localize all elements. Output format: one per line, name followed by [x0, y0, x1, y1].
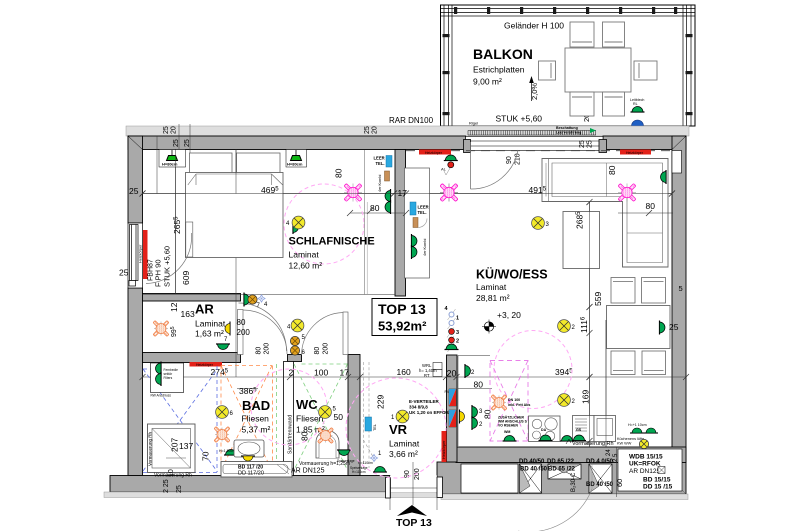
- svg-text:1,63 m²: 1,63 m²: [195, 329, 224, 339]
- svg-text:4er Kombi: 4er Kombi: [423, 239, 427, 256]
- svg-text:53,92m²: 53,92m²: [378, 319, 427, 334]
- svg-text:KÜ/WO/ESS: KÜ/WO/ESS: [476, 267, 548, 282]
- svg-text:RW Anschluss: RW Anschluss: [151, 394, 172, 398]
- svg-text:10: 10: [168, 469, 175, 477]
- svg-text:80: 80: [483, 409, 493, 419]
- svg-text:+3, 20: +3, 20: [497, 310, 521, 320]
- svg-text:Rigel: Rigel: [469, 121, 478, 126]
- svg-text:Laminat: Laminat: [289, 250, 320, 260]
- svg-text:17: 17: [340, 368, 350, 378]
- svg-text:20: 20: [372, 126, 379, 134]
- svg-text:VO RSEHEN: VO RSEHEN: [498, 424, 519, 428]
- svg-text:25: 25: [129, 186, 139, 196]
- svg-text:80: 80: [370, 203, 380, 213]
- svg-text:200: 200: [237, 328, 251, 337]
- svg-text:20: 20: [447, 369, 457, 379]
- svg-text:2: 2: [456, 339, 459, 345]
- svg-text:inkl. Fett Abs: inkl. Fett Abs: [508, 403, 530, 407]
- svg-text:B₂30-C: B₂30-C: [571, 472, 577, 492]
- svg-text:25: 25: [119, 268, 129, 278]
- svg-text:2,0%: 2,0%: [530, 83, 539, 100]
- svg-text:Heizkörper: Heizkörper: [626, 151, 644, 155]
- svg-text:H=110cm: H=110cm: [352, 470, 366, 474]
- svg-text:Estrichplatten: Estrichplatten: [473, 65, 525, 75]
- svg-text:25: 25: [669, 322, 679, 332]
- svg-text:80: 80: [237, 318, 246, 327]
- svg-text:PV: PV: [445, 390, 450, 394]
- svg-text:KW WW: KW WW: [617, 442, 632, 446]
- svg-text:DD 4 0/50: DD 4 0/50: [586, 459, 614, 465]
- svg-text:STUK +5,60: STUK +5,60: [496, 114, 543, 124]
- svg-text:Fliesen: Fliesen: [242, 414, 270, 424]
- svg-text:BD 40 /50: BD 40 /50: [520, 467, 548, 473]
- svg-text:3,66 m²: 3,66 m²: [389, 449, 418, 459]
- svg-text:H=110cm: H=110cm: [358, 461, 373, 465]
- svg-text:Vormauerung Rh: Vormauerung Rh: [148, 431, 153, 466]
- svg-text:50: 50: [334, 412, 344, 422]
- svg-text:9,00 m²: 9,00 m²: [473, 77, 502, 87]
- svg-text:Heizkörper: Heizkörper: [196, 363, 214, 367]
- svg-text:Sanitärtrennwand: Sanitärtrennwand: [288, 415, 294, 454]
- svg-text:163: 163: [181, 309, 195, 319]
- svg-text:Filters: Filters: [164, 376, 173, 380]
- svg-text:STUK +5,60: STUK +5,60: [163, 246, 172, 287]
- svg-text:DD 15 /15: DD 15 /15: [643, 484, 673, 491]
- svg-text:LEER: LEER: [418, 205, 429, 210]
- svg-text:Geländer H 100: Geländer H 100: [504, 21, 564, 31]
- svg-text:200: 200: [323, 343, 330, 355]
- svg-text:24: 24: [606, 449, 612, 456]
- svg-text:70: 70: [201, 451, 211, 461]
- svg-text:25: 25: [364, 126, 371, 134]
- svg-text:200: 200: [264, 343, 271, 355]
- svg-text:25: 25: [579, 140, 586, 148]
- svg-text:80: 80: [314, 347, 321, 355]
- svg-text:25: 25: [163, 126, 170, 134]
- svg-text:H=80cm: H=80cm: [287, 162, 303, 167]
- svg-text:Speisenlage: Speisenlage: [337, 459, 355, 463]
- svg-text:BAD: BAD: [242, 398, 270, 413]
- svg-text:100: 100: [314, 368, 328, 378]
- svg-text:Laminat: Laminat: [195, 319, 226, 329]
- svg-text:169: 169: [581, 390, 591, 404]
- svg-text:WM: WM: [504, 430, 510, 434]
- svg-text:80: 80: [607, 165, 617, 175]
- svg-text:3: 3: [456, 330, 459, 336]
- svg-text:5,37 m²: 5,37 m²: [242, 425, 271, 435]
- svg-text:BD 15/15: BD 15/15: [643, 477, 671, 484]
- svg-text:80: 80: [256, 347, 263, 355]
- svg-text:334 8/9,8: 334 8/9,8: [409, 405, 428, 410]
- svg-text:229: 229: [376, 395, 386, 409]
- svg-text:17: 17: [398, 188, 408, 198]
- svg-text:Vormauerung Rh: Vormauerung Rh: [572, 441, 614, 447]
- svg-text:BALKON: BALKON: [473, 46, 533, 62]
- svg-text:H=1 10cm: H=1 10cm: [219, 449, 235, 453]
- svg-text:80: 80: [646, 201, 656, 211]
- svg-text:GS: GS: [576, 428, 582, 432]
- svg-text:UK=RFOK: UK=RFOK: [629, 461, 661, 468]
- svg-text:Beschattung: Beschattung: [556, 126, 578, 130]
- svg-text:TEL: TEL: [373, 424, 377, 431]
- svg-text:BD 40 /50: BD 40 /50: [586, 482, 614, 488]
- svg-text:5: 5: [679, 284, 683, 293]
- svg-text:WC: WC: [296, 397, 318, 412]
- svg-text:160: 160: [397, 367, 411, 377]
- svg-text:DD 65 /22: DD 65 /22: [547, 459, 575, 465]
- svg-text:DN 100: DN 100: [508, 398, 520, 402]
- svg-text:AR: AR: [195, 302, 214, 317]
- svg-text:TEL.: TEL.: [376, 161, 385, 166]
- svg-text:90: 90: [506, 156, 513, 164]
- svg-text:BD 65 /22: BD 65 /22: [548, 467, 576, 473]
- svg-text:SCHLAFNISCHE: SCHLAFNISCHE: [289, 236, 375, 248]
- svg-text:TOP 13: TOP 13: [396, 517, 432, 529]
- svg-text:TEL.: TEL.: [418, 210, 427, 215]
- svg-text:80: 80: [474, 380, 484, 390]
- svg-text:207: 207: [170, 438, 180, 452]
- svg-text:RAR DN100: RAR DN100: [389, 116, 434, 125]
- svg-text:2 5: 2 5: [613, 453, 619, 462]
- svg-text:559: 559: [593, 292, 603, 306]
- svg-text:Laminat: Laminat: [389, 439, 420, 449]
- svg-text:VR: VR: [389, 422, 408, 437]
- svg-text:LEER: LEER: [374, 156, 385, 161]
- svg-text:137: 137: [179, 441, 193, 451]
- svg-text:25: 25: [173, 139, 180, 147]
- svg-text:25: 25: [176, 485, 183, 493]
- svg-text:2 25: 2 25: [163, 479, 170, 493]
- svg-text:25: 25: [184, 139, 191, 147]
- svg-text:12,60 m²: 12,60 m²: [289, 261, 323, 271]
- svg-text:RL: RL: [633, 102, 638, 106]
- svg-text:12: 12: [169, 302, 179, 312]
- svg-text:UK 1,20 on EFFOK: UK 1,20 on EFFOK: [409, 410, 450, 415]
- svg-text:H=+1 10cm: H=+1 10cm: [628, 423, 647, 427]
- svg-text:25: 25: [587, 140, 594, 148]
- svg-text:DD 40/50: DD 40/50: [519, 459, 545, 465]
- svg-text:80: 80: [334, 168, 344, 178]
- svg-text:F PH 90: F PH 90: [154, 259, 163, 287]
- svg-text:Laminat: Laminat: [476, 282, 507, 292]
- svg-text:PV: PV: [445, 411, 450, 415]
- svg-text:609: 609: [181, 271, 191, 285]
- svg-text:Heizkörper: Heizkörper: [139, 244, 143, 263]
- svg-text:80: 80: [300, 431, 310, 441]
- svg-text:4er Kombi: 4er Kombi: [378, 175, 382, 192]
- svg-text:Leerverohrung: Leerverohrung: [556, 131, 581, 135]
- svg-text:Heizkörper: Heizkörper: [425, 151, 443, 155]
- svg-text:28,81 m²: 28,81 m²: [476, 293, 510, 303]
- svg-text:E-VERTEILER: E-VERTEILER: [409, 399, 440, 404]
- svg-text:1: 1: [456, 316, 459, 322]
- svg-text:WDB 15/15: WDB 15/15: [629, 454, 663, 461]
- svg-text:Küchenens lüfte: Küchenens lüfte: [617, 437, 644, 441]
- svg-text:AR DN125: AR DN125: [629, 468, 660, 475]
- svg-text:AR DN125: AR DN125: [291, 468, 325, 475]
- svg-text:20: 20: [171, 126, 178, 134]
- svg-text:DD 117/20: DD 117/20: [238, 471, 264, 477]
- svg-text:Heizkörper: Heizkörper: [442, 440, 446, 459]
- svg-text:DA: DA: [541, 428, 547, 432]
- svg-text:TOP 13: TOP 13: [378, 301, 426, 317]
- svg-text:RT: RT: [424, 373, 430, 378]
- svg-text:AL: AL: [441, 167, 447, 172]
